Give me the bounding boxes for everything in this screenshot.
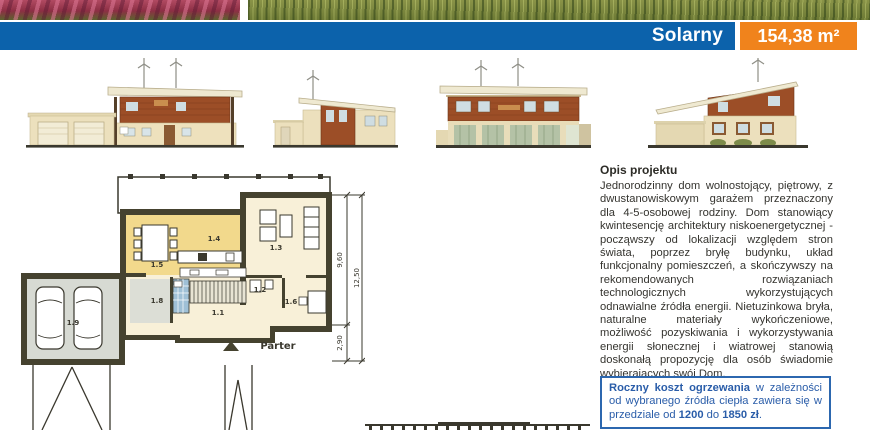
room-label-1-3: 1.3: [270, 244, 283, 252]
room-label-1-2: 1.2: [254, 286, 267, 294]
stairs: [190, 281, 246, 303]
title-bar: Solarny: [0, 22, 735, 50]
floor-label-parter: Parter: [260, 341, 295, 352]
elevation-drawing-side-right: [648, 58, 808, 150]
project-name: Solarny: [652, 25, 723, 47]
room-label-1-1: 1.1: [212, 309, 225, 317]
room-label-1-4: 1.4: [208, 235, 221, 243]
elevation-drawing-side-garage: [26, 58, 244, 150]
description-heading: Opis projektu: [600, 163, 833, 177]
description-paragraph: Jednorodzinny dom wolnostojący, piętrowy…: [600, 180, 833, 381]
dim-label-9-60: 9,60: [336, 252, 344, 268]
room-label-1-8: 1.8: [151, 297, 164, 305]
upper-floor-plan-fragment: [365, 420, 590, 430]
room-label-1-9: 1.9: [67, 319, 80, 327]
info-value-max: 1850 zł: [722, 409, 759, 421]
area-badge: 154,38 m²: [740, 22, 857, 50]
dim-label-12-50: 12,50: [353, 268, 361, 288]
info-mid2: do: [704, 409, 723, 421]
driveway-lines: [33, 365, 252, 430]
room-label-1-6: 1.6: [285, 298, 298, 306]
wind-turbine-icon: [752, 58, 764, 82]
elevation-drawing-side-left: [273, 58, 398, 150]
elevation-drawing-front: [436, 58, 591, 150]
brochure-page: Solarny 154,38 m²: [0, 0, 870, 430]
kitchen-counter: [180, 268, 246, 277]
dining-table: [134, 225, 177, 261]
wind-turbine-icon: [475, 58, 524, 86]
bathroom: [173, 279, 189, 313]
shuttered-windows: [712, 122, 774, 135]
room-hall: [180, 305, 270, 338]
info-lead: Roczny koszt ogrzewania: [609, 382, 750, 394]
info-value-min: 1200: [679, 409, 704, 421]
heating-cost-box: Roczny koszt ogrzewania w zależności od …: [600, 376, 831, 429]
photo-grass: [248, 0, 870, 20]
kitchen-island: [178, 251, 242, 263]
dim-label-2-90: 2,90: [336, 335, 344, 351]
wind-turbine-icon: [307, 70, 319, 102]
info-end: .: [759, 409, 762, 421]
room-label-1-5: 1.5: [151, 261, 164, 269]
project-description: Opis projektu Jednorodzinny dom wolnosto…: [600, 163, 833, 381]
photo-flowers: [0, 0, 240, 20]
wind-turbine-icon: [138, 58, 182, 88]
floor-plan-parter: 1.5 1.4 1.3 1.8 1.2 1.6 1.1 1.9 9,60 2,9…: [20, 165, 365, 430]
